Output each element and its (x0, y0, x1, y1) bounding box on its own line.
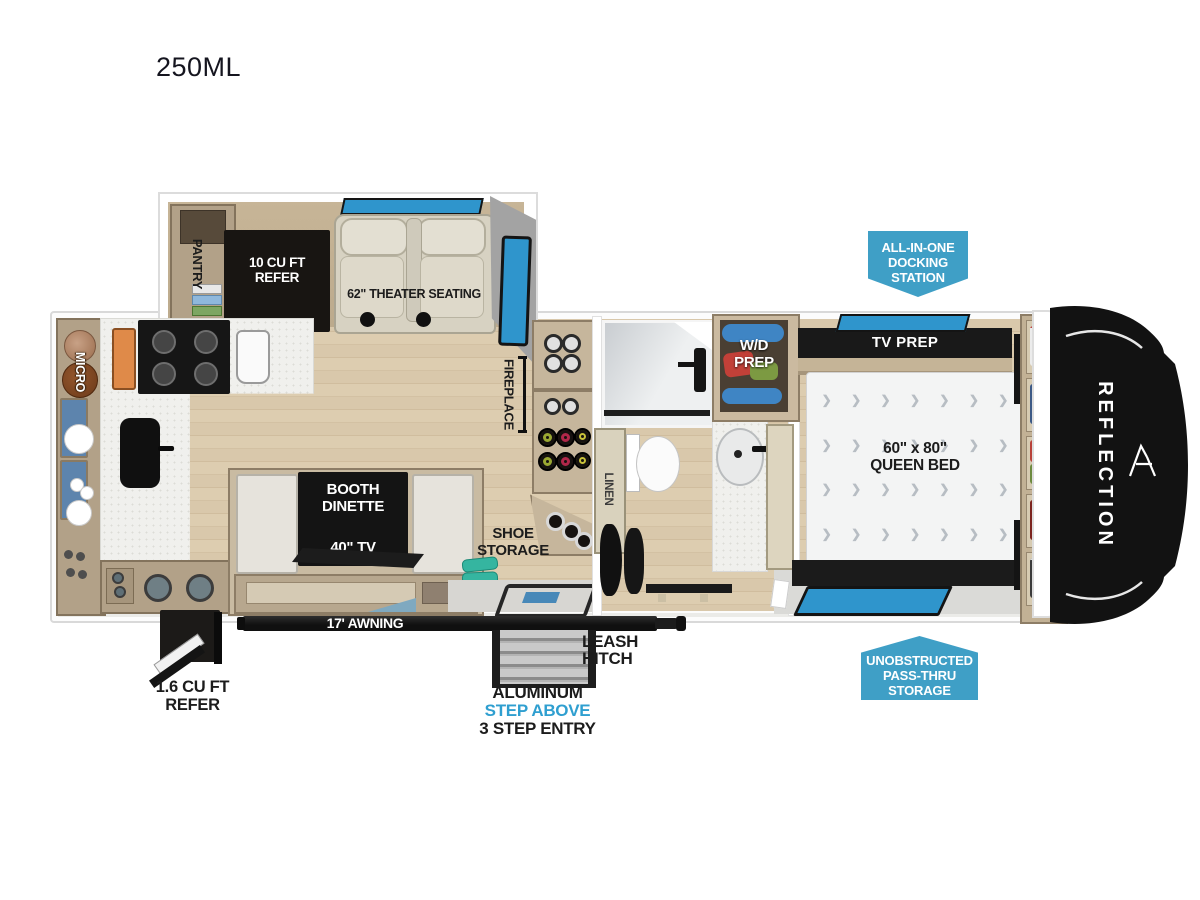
docking-station-badge: ALL-IN-ONE DOCKING STATION (868, 231, 968, 297)
cutting-board (112, 328, 136, 390)
theater-cupholder-left (360, 312, 375, 327)
sink-faucet (158, 446, 174, 451)
bed-foot-dresser (792, 560, 1014, 586)
burner-3 (152, 362, 176, 386)
glass-2 (562, 334, 581, 353)
sink (120, 418, 160, 488)
brand-logo-icon (1128, 442, 1158, 482)
step-label-line3: 3 STEP ENTRY (450, 720, 625, 739)
kitchen-knob-4 (78, 570, 87, 579)
page-title: 250ML (156, 52, 241, 83)
dinette-bench-left (236, 474, 298, 574)
headboard (798, 358, 1012, 371)
hitch-rod-cap (676, 616, 686, 631)
dinette-slide-window (246, 582, 416, 604)
stove (138, 320, 230, 394)
glass-3 (544, 354, 563, 373)
shoe-storage-label: SHOE STORAGE (448, 526, 578, 559)
theater-label: 62" THEATER SEATING (336, 288, 492, 302)
plate-small-2 (80, 486, 94, 500)
awning-label: 17' AWNING (305, 616, 425, 631)
step-label-line1: ALUMINUM (450, 684, 625, 703)
theater-cupholder-right (416, 312, 431, 327)
trash-bin (236, 330, 270, 384)
wd-clothes-blue-bottom (722, 388, 782, 404)
shower-fixture (694, 348, 706, 392)
pantry-shelf-green (192, 306, 222, 316)
micro-label: MICRO (72, 344, 86, 400)
wine-bottle-1 (538, 428, 557, 447)
speaker-small-1 (112, 572, 124, 584)
burner-1 (152, 330, 176, 354)
theater-seat-back-right (418, 218, 486, 256)
passthru-storage-badge: UNOBSTRUCTED PASS-THRU STORAGE (861, 636, 978, 700)
leash-hitch-label: LEASH HITCH (582, 633, 672, 667)
kitchen-knob-3 (66, 568, 75, 577)
bath-bench-foot-1 (658, 594, 666, 602)
bedroom-window-top (836, 314, 971, 332)
bath-chair-seat (624, 528, 644, 594)
speaker-small-2 (114, 586, 126, 598)
bath-chair-back (600, 524, 622, 596)
wine-bottle-4 (538, 452, 557, 471)
mini-refer-side (214, 612, 222, 664)
refrigerator-label: 10 CU FT REFER (224, 256, 330, 286)
plate-large (64, 424, 94, 454)
speaker-2 (186, 574, 214, 602)
hitch-rod (655, 618, 677, 629)
brand-label: REFLECTION (1092, 355, 1118, 575)
pantry-label: PANTRY (189, 229, 205, 299)
toilet-bowl (636, 436, 680, 492)
wine-bottle-3 (574, 428, 591, 445)
mini-refer-label: 1.6 CU FT REFER (150, 678, 235, 714)
glass-4 (562, 354, 581, 373)
fireplace-label: FIREPLACE (501, 352, 516, 438)
linen-label: LINEN (602, 459, 614, 519)
glass-6 (562, 398, 579, 415)
theater-seat-back-left (340, 218, 408, 256)
burner-2 (194, 330, 218, 354)
entry-steps (492, 630, 596, 688)
hutch-shelf-top (532, 320, 594, 390)
glass-1 (544, 334, 563, 353)
fireplace-tick-top (518, 356, 527, 359)
wine-bottle-2 (556, 428, 575, 447)
plate-medium (66, 500, 92, 526)
burner-4 (194, 362, 218, 386)
bedroom-window-bottom (793, 586, 953, 616)
fireplace-unit (523, 358, 526, 432)
glass-5 (544, 398, 561, 415)
kitchen-knob-1 (64, 550, 73, 559)
queen-bed-label: 60" x 80" QUEEN BED (806, 440, 1024, 474)
vanity-drain (734, 450, 742, 458)
vanity-cabinet (766, 424, 794, 570)
dinette-label: BOOTH DINETTE (298, 482, 408, 515)
slideout-end-window (498, 236, 532, 347)
floorplan-canvas: 250ML PANTRY 10 CU FT REFER 62" THEATER … (0, 0, 1200, 900)
wine-bottle-6 (574, 452, 591, 469)
bath-bench (646, 584, 732, 593)
shower-threshold (604, 410, 710, 416)
tv-prep-label: TV PREP (798, 335, 1012, 352)
wine-bottle-5 (556, 452, 575, 471)
theater-window (340, 198, 484, 215)
entry-door-mat (522, 592, 560, 603)
speaker-1 (144, 574, 172, 602)
awning-cap-left (237, 617, 245, 630)
wd-prep-label: W/D PREP (712, 338, 796, 371)
fireplace-tick-bottom (518, 430, 527, 433)
bath-bench-foot-2 (700, 594, 708, 602)
kitchen-knob-2 (76, 552, 85, 561)
shower-fixture-arm (678, 362, 696, 367)
step-label-line2: STEP ABOVE (450, 702, 625, 721)
